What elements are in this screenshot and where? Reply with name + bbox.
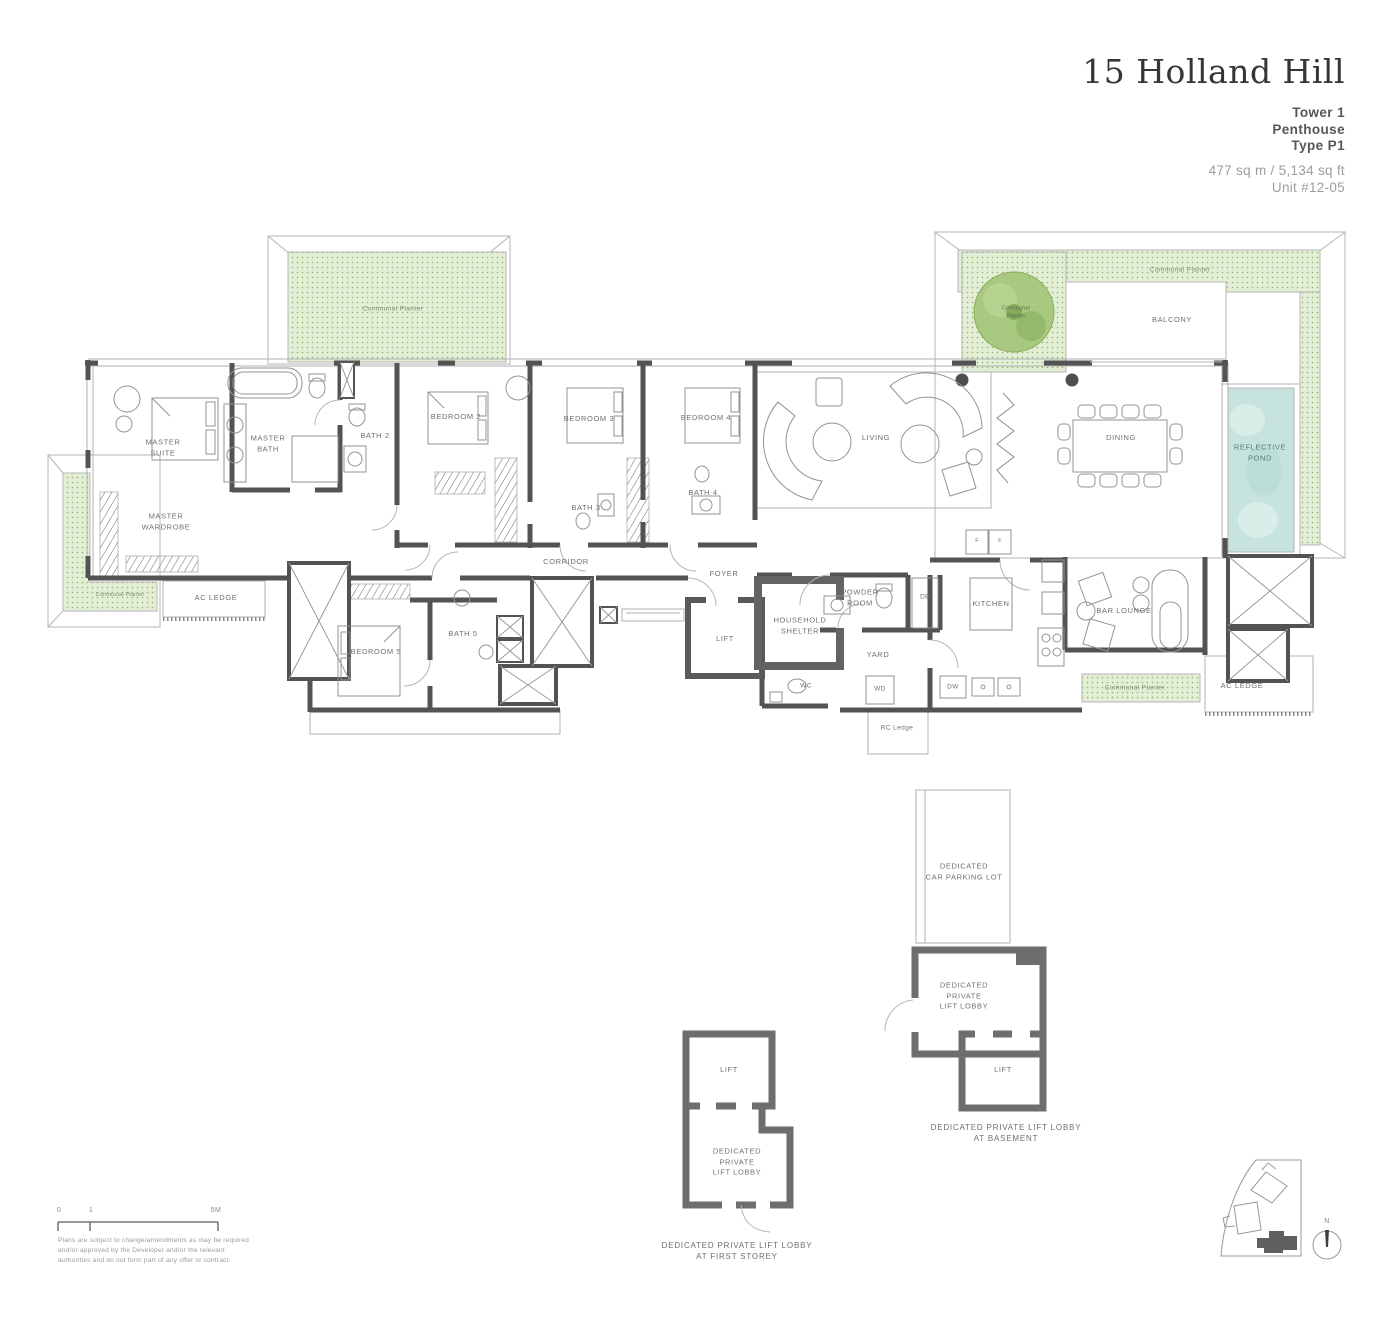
room-label-ac-ledge-left: AC LEDGE	[195, 593, 238, 604]
planter-label-top-left: Communal Planter	[363, 304, 423, 313]
header-subtitle: Tower 1 Penthouse Type P1	[925, 105, 1345, 155]
tower-label: Tower 1	[925, 105, 1345, 122]
type-code-label: Type P1	[925, 138, 1345, 155]
room-label-wc: WC	[800, 681, 812, 690]
label-car-parking: DEDICATED CAR PARKING LOT	[926, 862, 1003, 883]
caption-basement: DEDICATED PRIVATE LIFT LOBBY AT BASEMENT	[931, 1122, 1082, 1144]
room-label-bedroom-2: BEDROOM 2	[431, 412, 481, 423]
room-label-reflective-pond: REFLECTIVE POND	[1234, 443, 1286, 464]
room-label-dining: DINING	[1106, 433, 1136, 444]
area-label: 477 sq m / 5,134 sq ft	[925, 162, 1345, 179]
room-label-master-bath: MASTER BATH	[251, 434, 286, 455]
planter-label-top-right: Communal Planter	[1150, 265, 1210, 274]
project-title: 15 Holland Hill	[925, 52, 1345, 91]
room-label-bath-2: BATH 2	[360, 431, 389, 442]
label-lobby-basement: DEDICATED PRIVATE LIFT LOBBY	[940, 980, 988, 1012]
room-label-kitchen: KITCHEN	[972, 599, 1009, 610]
room-label-bath-5: BATH 5	[448, 629, 477, 640]
compass-north-label: N	[1324, 1217, 1329, 1227]
unit-number-label: Unit #12-05	[925, 179, 1345, 196]
scale-tick-0: 0	[57, 1206, 61, 1216]
caption-first-storey: DEDICATED PRIVATE LIFT LOBBY AT FIRST ST…	[662, 1240, 813, 1262]
room-label-rc-ledge: RC Ledge	[881, 723, 913, 732]
floorplan-page: 15 Holland Hill Tower 1 Penthouse Type P…	[0, 0, 1400, 1318]
fridge-label-1: F	[975, 538, 979, 546]
room-label-ac-ledge-right: AC LEDGE	[1221, 681, 1264, 692]
room-label-household-shelter: HOUSEHOLD SHELTER	[774, 616, 827, 637]
label-lift-basement: LIFT	[994, 1065, 1012, 1076]
room-label-balcony: BALCONY	[1152, 315, 1192, 326]
header-meta: 477 sq m / 5,134 sq ft Unit #12-05	[925, 162, 1345, 196]
room-label-bar-lounge: BAR LOUNGE	[1096, 606, 1151, 617]
room-label-living: LIVING	[862, 433, 890, 444]
room-label-dw: DW	[947, 682, 959, 691]
room-label-bedroom-5: BEDROOM 5	[351, 647, 401, 658]
room-label-master-wardrobe: MASTER WARDROBE	[142, 512, 191, 533]
room-label-corridor: CORRIDOR	[543, 557, 589, 568]
scale-tick-5m: 5M	[211, 1206, 222, 1216]
planter-label-bottom: Communal Planter	[1105, 683, 1165, 692]
room-label-powder-room: POWDER ROOM	[841, 588, 878, 609]
room-label-wd: WD	[874, 684, 886, 693]
room-label-bedroom-3: BEDROOM 3	[564, 414, 614, 425]
room-label-yard: YARD	[867, 650, 890, 661]
unit-type-label: Penthouse	[925, 122, 1345, 139]
label-lift-first: LIFT	[720, 1065, 738, 1076]
scale-tick-1: 1	[89, 1206, 93, 1216]
room-label-foyer: FOYER	[710, 569, 739, 580]
room-label-db: DB	[920, 592, 930, 601]
room-label-lift: LIFT	[716, 634, 734, 645]
header: 15 Holland Hill Tower 1 Penthouse Type P…	[925, 52, 1345, 196]
planter-label-left: Communal Planter	[96, 592, 145, 600]
label-lobby-first: DEDICATED PRIVATE LIFT LOBBY	[713, 1146, 761, 1178]
room-label-bath-4: BATH 4	[688, 488, 717, 499]
planter-label-tree: Communal Planter	[1002, 305, 1030, 320]
room-label-bath-3: BATH 3	[571, 503, 600, 514]
fridge-label-2: F	[998, 538, 1002, 546]
floor-plan-drawing	[0, 0, 1400, 1318]
disclaimer-text: Plans are subject to change/amendments a…	[58, 1236, 249, 1266]
room-label-master-suite: MASTER SUITE	[146, 438, 181, 459]
room-label-bedroom-4: BEDROOM 4	[681, 413, 731, 424]
